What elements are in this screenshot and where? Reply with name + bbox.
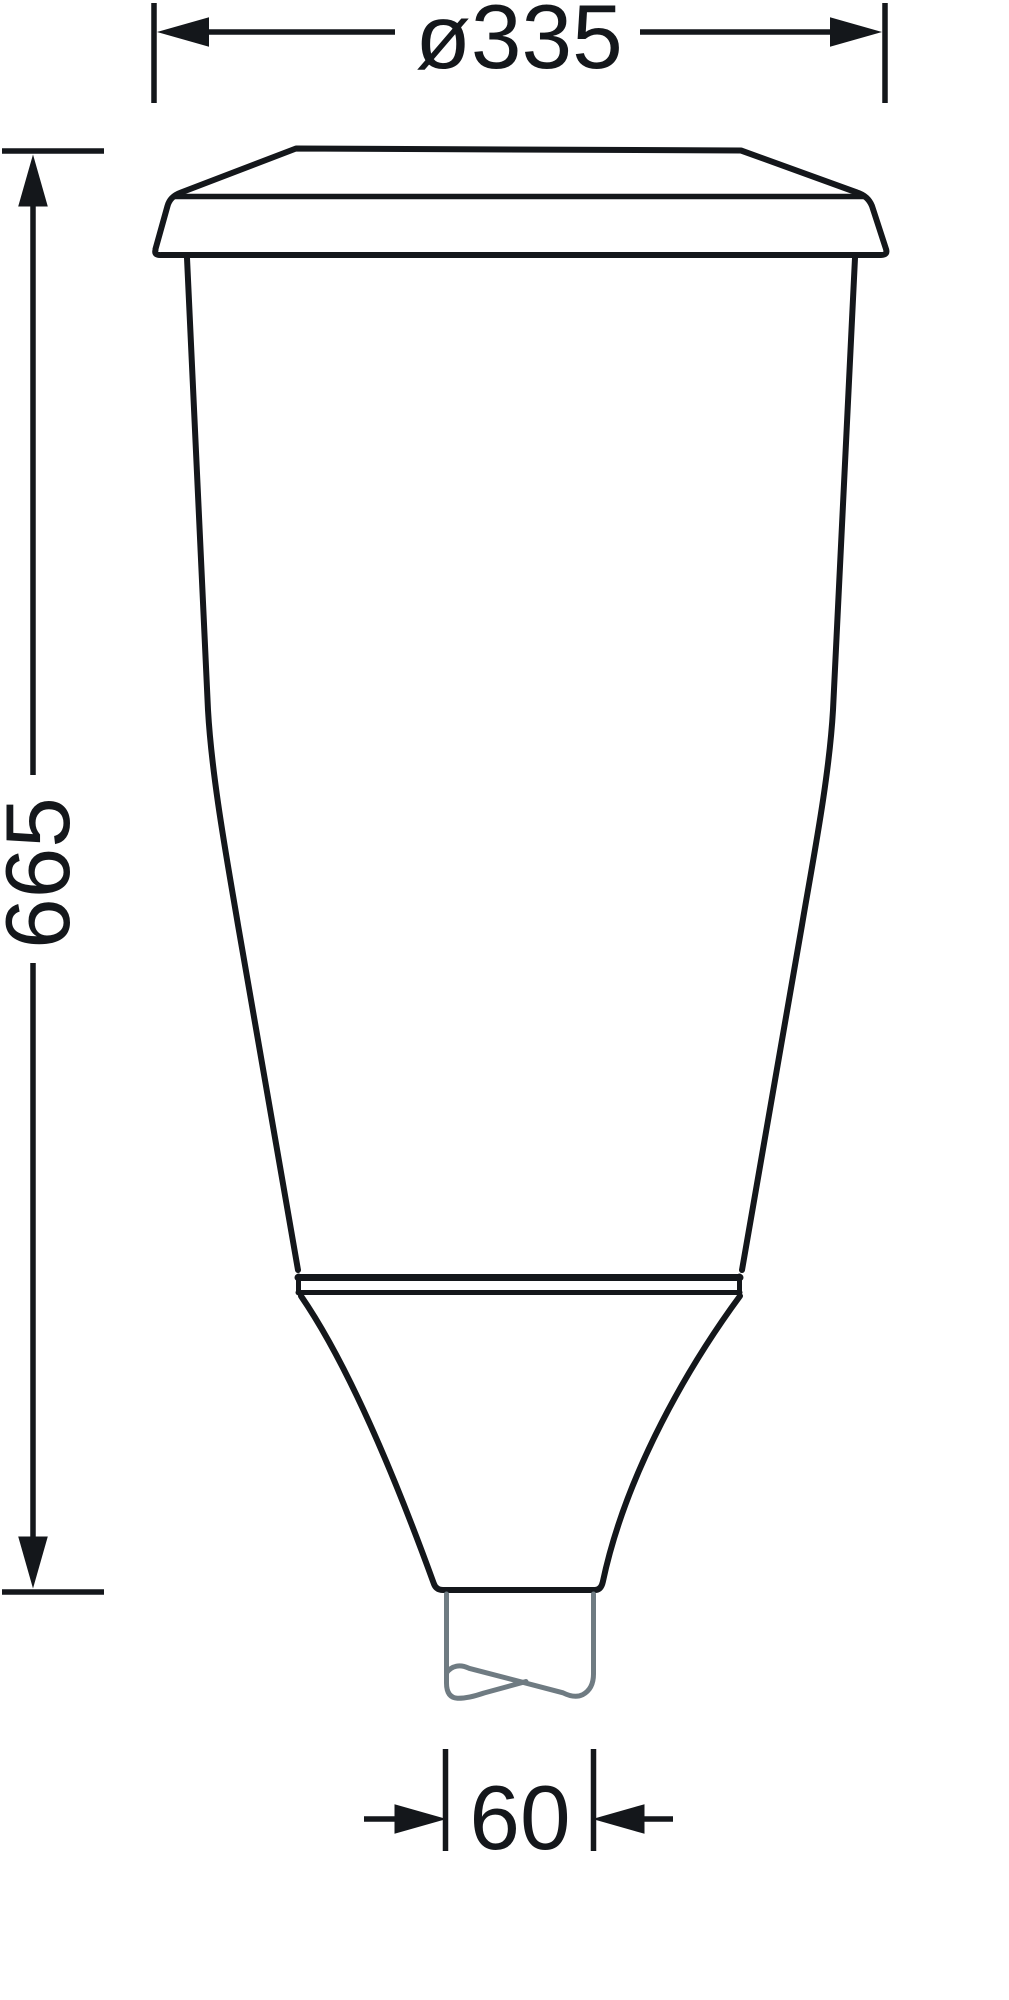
svg-text:ø335: ø335	[415, 0, 622, 88]
svg-text:665: 665	[0, 797, 89, 949]
svg-text:60: 60	[469, 1768, 570, 1869]
